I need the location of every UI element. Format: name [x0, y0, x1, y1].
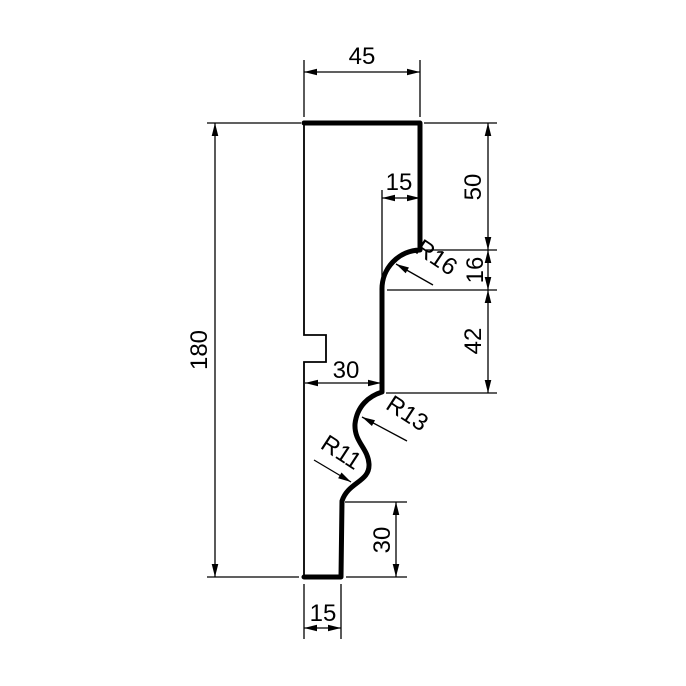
dim-text-upper-right-height: 50: [460, 174, 487, 201]
dim-text-middle-right-height: 42: [460, 328, 487, 355]
profile-drawing: 45 180 50 16 42 15 30 30 15 R16 R13 R11: [0, 0, 686, 686]
dim-text-overall-height: 180: [186, 330, 213, 370]
profile-back-face: [304, 123, 326, 577]
dim-text-bottom-width: 15: [310, 600, 337, 627]
radius-text-ogee-upper: R13: [381, 390, 433, 437]
dim-text-top-width: 45: [349, 43, 376, 70]
dim-text-middle-width: 30: [333, 357, 360, 384]
dim-text-lower-right-height: 30: [369, 527, 396, 554]
dim-text-cove-height: 16: [462, 257, 489, 284]
dim-text-upper-step-width: 15: [386, 169, 413, 196]
drawing-canvas: 45 180 50 16 42 15 30 30 15 R16 R13 R11: [0, 0, 686, 686]
